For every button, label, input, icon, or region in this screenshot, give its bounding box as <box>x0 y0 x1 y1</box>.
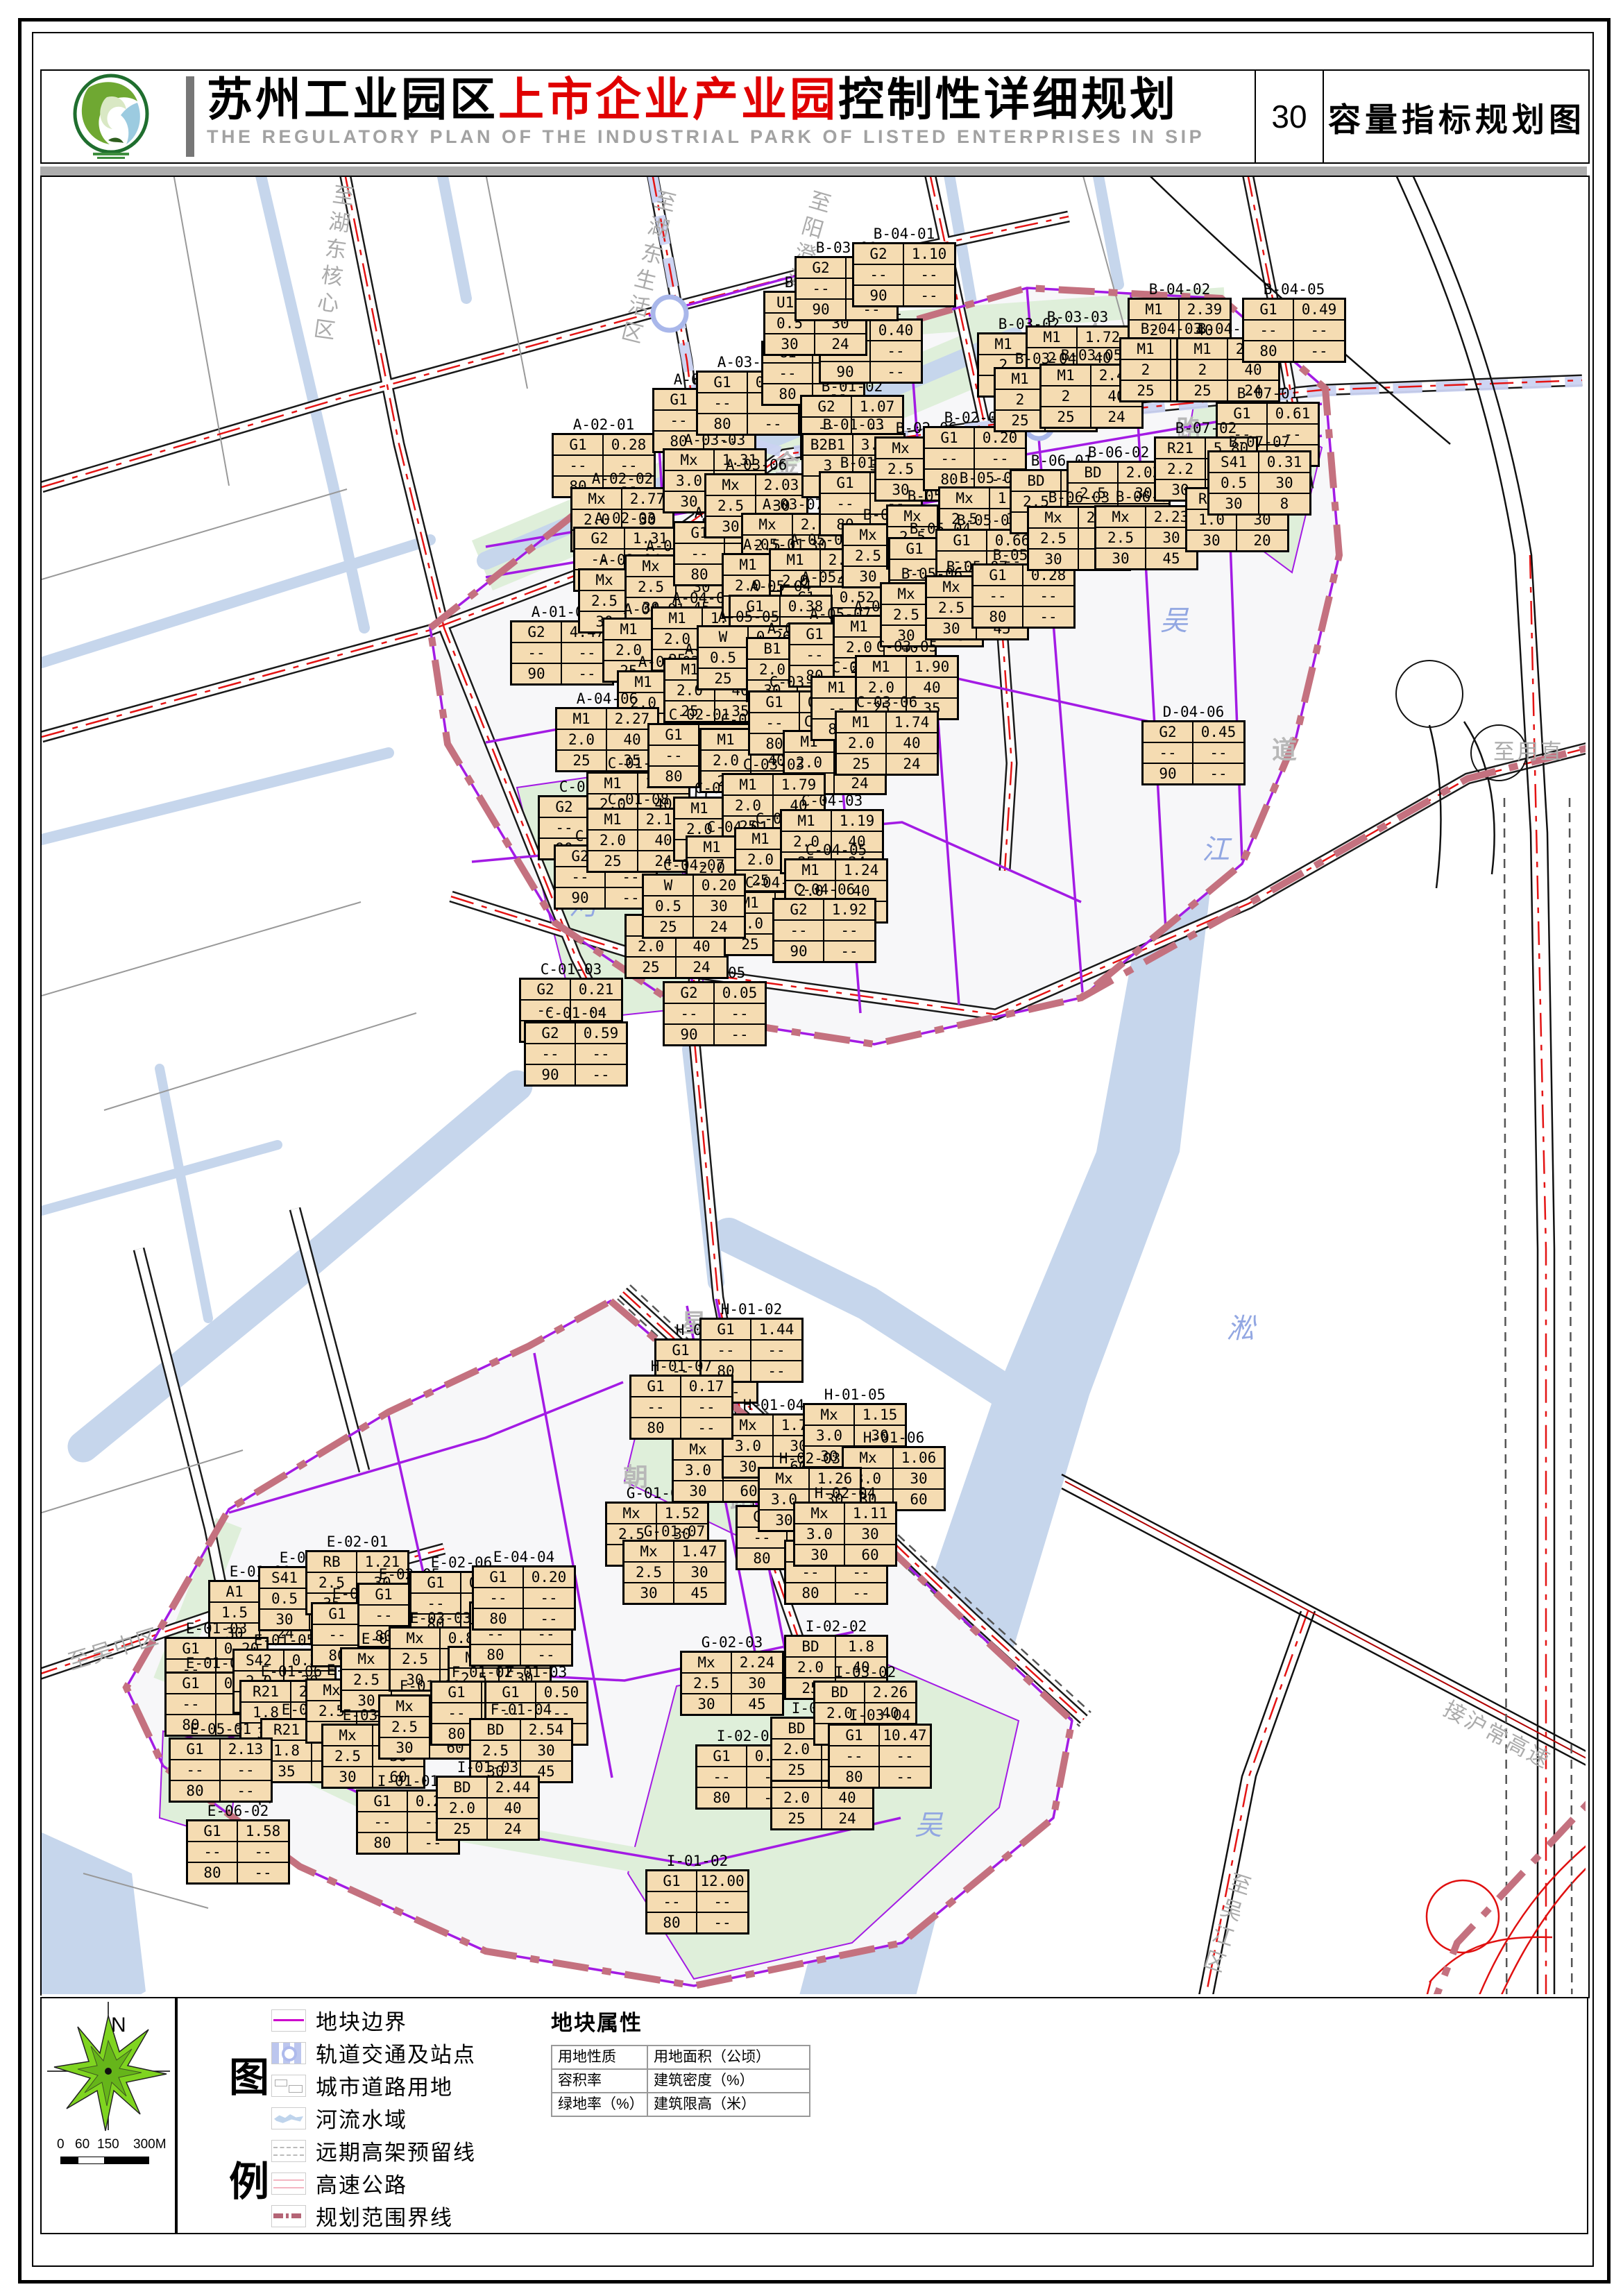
map-canvas <box>0 0 1623 2296</box>
plan-sheet: 苏州工业园区上市企业产业园控制性详细规划 THE REGULATORY PLAN… <box>0 0 1623 2296</box>
